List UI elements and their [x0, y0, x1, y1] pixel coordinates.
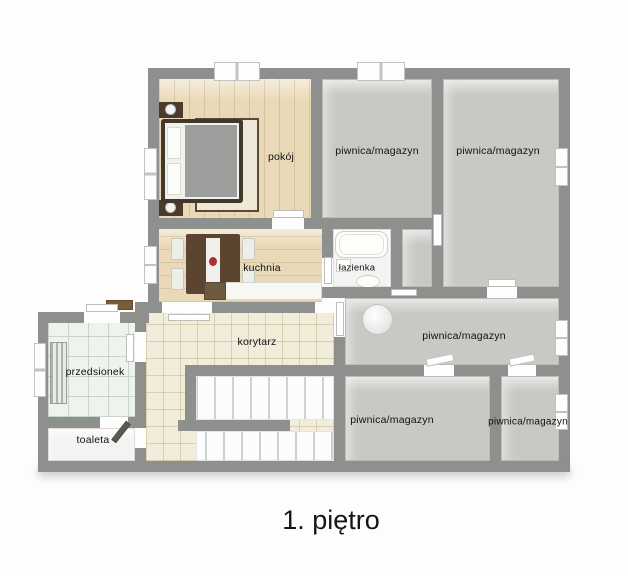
kitchen-cabinet — [204, 282, 226, 300]
window-piwnica-top — [357, 62, 405, 81]
window-piwnica-middle-right — [555, 320, 568, 356]
window-kuchnia-left — [144, 246, 157, 284]
wall-lazienka-left — [322, 229, 333, 258]
wall-piwnica-bottom-top — [345, 365, 424, 376]
room-label-przedsionek: przedsionek — [66, 366, 125, 378]
wall-przedsionek-toaleta — [128, 417, 146, 428]
window-pokoj-left — [144, 148, 157, 200]
wall-pokoj-kuchnia — [304, 218, 443, 229]
door-entrance — [86, 304, 118, 312]
room-label-piwnica-middle: piwnica/magazyn — [422, 330, 506, 342]
room-label-kuchnia: kuchnia — [243, 262, 281, 274]
chair — [171, 238, 184, 260]
storage-niche — [402, 229, 432, 287]
window-przedsionek-left — [34, 343, 46, 397]
room-label-piwnica-top-right: piwnica/magazyn — [456, 145, 540, 157]
door-piwnica-top-right — [488, 279, 516, 287]
room-label-lazienka: łazienka — [339, 263, 375, 274]
stairs-upper-flight — [196, 376, 334, 420]
stairs-lower-flight — [196, 431, 334, 461]
window-piwnica-right — [555, 148, 568, 186]
door-przedsionek — [126, 334, 134, 362]
room-label-piwnica-top-left: piwnica/magazyn — [335, 145, 419, 157]
radiator — [50, 342, 67, 404]
room-piwnica-top-right — [443, 79, 559, 287]
wall-przedsionek-toaleta — [38, 417, 100, 428]
room-label-pokoj: pokój — [268, 151, 294, 163]
room-label-piwnica-bottom-left: piwnica/magazyn — [350, 414, 434, 426]
door-lazienka — [324, 257, 332, 284]
door-storage-niche — [433, 214, 442, 246]
wall-przedsionek-right — [135, 448, 146, 461]
pillow — [167, 163, 181, 195]
wall-piwnica-divider — [432, 68, 443, 298]
wall-pokoj-kuchnia — [148, 218, 272, 229]
flower-icon — [209, 257, 217, 266]
chair — [171, 268, 184, 290]
wall-outer-bottom — [38, 461, 570, 472]
door-korytarz-piwnica — [336, 302, 344, 336]
wall-przedsionek-right — [135, 362, 146, 420]
pillow — [167, 127, 181, 159]
water-heater — [362, 304, 393, 335]
door-pokoj — [273, 210, 304, 218]
wall-pokoj-piwnica — [311, 68, 322, 229]
room-label-piwnica-bottom-right: piwnica/magazyn — [488, 417, 568, 428]
bathtub-inner — [339, 234, 384, 255]
room-label-toaleta: toaleta — [77, 434, 110, 446]
stairs-divider — [178, 420, 290, 431]
wall-piwnica-bottom-top — [454, 365, 508, 376]
lamp-icon — [165, 104, 176, 115]
floor-plan-canvas: pokój piwnica/magazyn piwnica/magazyn ku… — [0, 0, 628, 576]
wall-piwnica-bottom-top — [536, 365, 570, 376]
wall-korytarz-right — [334, 337, 345, 461]
window-pokoj-top — [214, 62, 260, 81]
wall-kuchnia-korytarz — [212, 302, 315, 313]
chair — [242, 238, 255, 260]
lamp-icon — [165, 202, 176, 213]
door-kuchnia-korytarz — [168, 314, 210, 321]
floor-caption: 1. piętro — [0, 505, 628, 536]
wall-middle-horizontal — [517, 287, 570, 298]
wall-lazienka-right — [391, 229, 402, 287]
door-lazienka-bottom — [391, 289, 417, 296]
room-label-korytarz: korytarz — [238, 336, 277, 348]
wall-stairs-top — [185, 365, 334, 376]
bed-blanket — [185, 125, 237, 197]
wall-przedsionek-right — [135, 312, 146, 332]
